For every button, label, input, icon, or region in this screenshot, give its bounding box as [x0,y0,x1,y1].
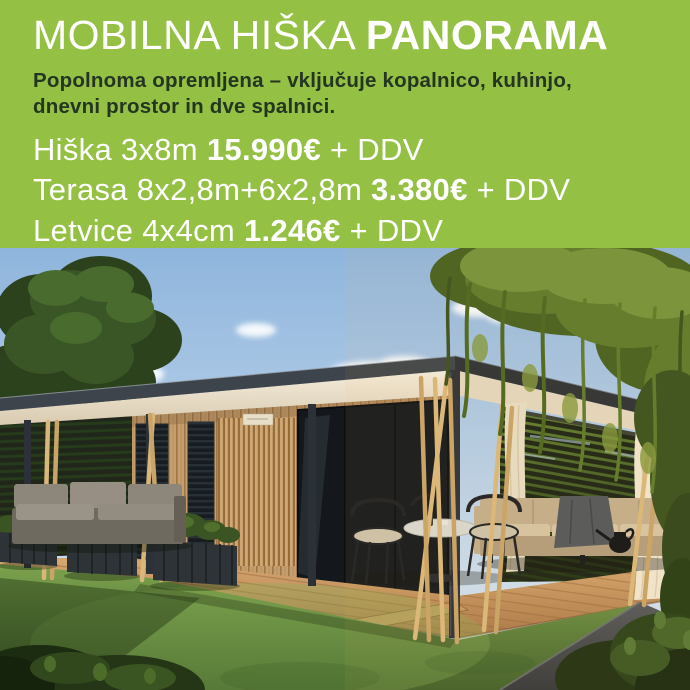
title-regular: MOBILNA HIŠKA [33,12,354,58]
ad-banner: MOBILNA HIŠKA PANORAMA Popolnoma opremlj… [0,0,690,690]
window-shutter-2 [188,422,214,562]
title-bold: PANORAMA [366,12,608,58]
price-row-slats: Letvice 4x4cm 1.246€ + DDV [33,211,657,251]
sofa-left [8,482,192,553]
batten-curtain [218,418,296,566]
price-list: Hiška 3x8m 15.990€ + DDV Terasa 8x2,8m+6… [33,130,657,251]
house-sign [243,414,273,425]
subtitle-line2: dnevni prostor in dve spalnici. [33,95,335,118]
subtitle: Popolnoma opremljena – vključuje kopalni… [33,68,657,119]
price-value: 3.380€ [371,172,468,207]
price-row-house: Hiška 3x8m 15.990€ + DDV [33,130,657,170]
ad-header: MOBILNA HIŠKA PANORAMA Popolnoma opremlj… [33,12,657,251]
price-row-terrace: Terasa 8x2,8m+6x2,8m 3.380€ + DDV [33,170,657,210]
price-value: 15.990€ [207,132,321,167]
price-value: 1.246€ [244,213,341,248]
house-photo [0,248,690,690]
page-title: MOBILNA HIŠKA PANORAMA [33,12,657,59]
warm-light-overlay [345,248,690,690]
subtitle-line1: Popolnoma opremljena – vključuje kopalni… [33,69,572,92]
